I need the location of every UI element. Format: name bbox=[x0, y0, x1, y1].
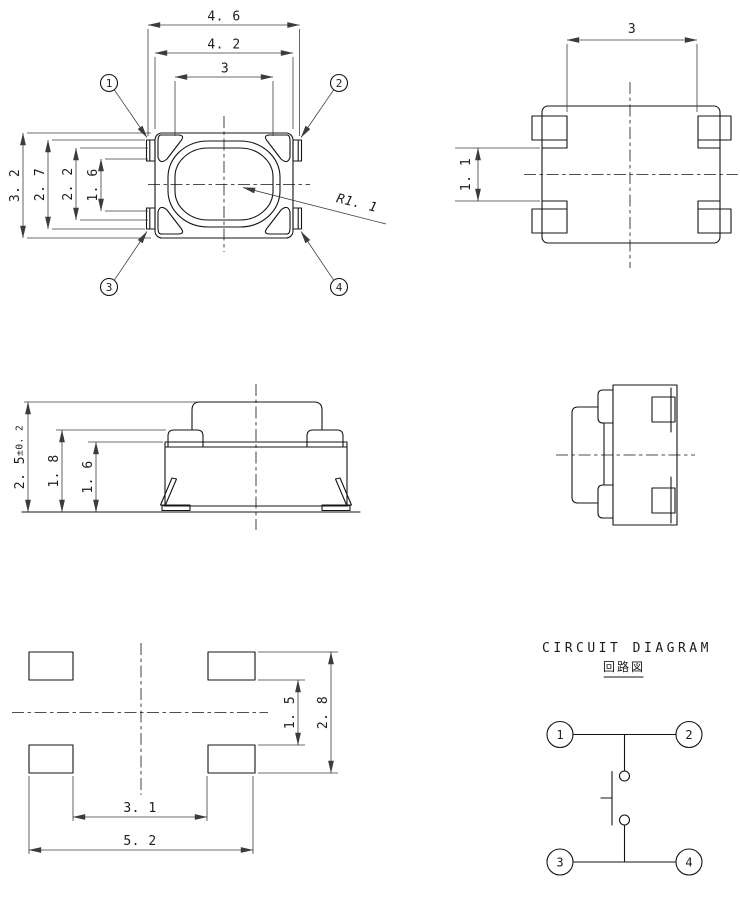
leg-left bbox=[161, 478, 177, 506]
pin1-number: 1 bbox=[106, 77, 113, 90]
circuit-diagram: CIRCUIT DIAGRAM 回路図 1 2 3 4 bbox=[520, 630, 740, 890]
pad-top-left bbox=[29, 652, 73, 680]
front-view-outline bbox=[22, 384, 360, 530]
dim-label-terminal-gap: 1. 1 bbox=[459, 158, 474, 191]
pad-top-right bbox=[208, 652, 255, 680]
button-stem bbox=[192, 402, 322, 442]
land-pattern-drawing: 1. 5 2. 8 3. 1 5. 2 bbox=[0, 625, 350, 875]
cover-tab-right bbox=[307, 430, 343, 447]
contact-upper bbox=[620, 771, 630, 781]
dim-label-cover-height: 1. 8 bbox=[47, 454, 62, 487]
top-view-drawing: 4. 6 4. 2 3 3. 2 2. 7 2. 2 1. 6 bbox=[0, 0, 420, 320]
circuit-pin3-number: 3 bbox=[556, 856, 563, 870]
dim-label-pad-span-h: 5. 2 bbox=[123, 834, 156, 849]
bottom-view-drawing: 3 1. 1 bbox=[440, 0, 740, 290]
body-outline-side bbox=[613, 385, 677, 525]
bottom-view-outline bbox=[524, 82, 738, 268]
side-view-drawing bbox=[550, 380, 700, 530]
circuit-pin2-number: 2 bbox=[685, 728, 692, 742]
switch-body-top-outline bbox=[147, 116, 311, 252]
dim-label-width: 3 bbox=[628, 22, 636, 37]
dim-label-body-width: 4. 2 bbox=[207, 38, 240, 53]
dim-label-center-height: 1. 6 bbox=[86, 168, 101, 201]
dim-label-body-height: 3. 2 bbox=[8, 169, 23, 202]
side-view-outline bbox=[556, 385, 695, 525]
front-view-drawing: 2. 5±0. 2 1. 8 1. 6 bbox=[0, 380, 370, 535]
circuit-pin1-number: 1 bbox=[556, 728, 563, 742]
dim-label-pad-gap-v: 1. 5 bbox=[283, 696, 298, 729]
pin3-number: 3 bbox=[106, 281, 113, 294]
pin4-number: 4 bbox=[336, 281, 343, 294]
dim-label-terminal-span: 2. 7 bbox=[33, 168, 48, 201]
pad-bottom-right bbox=[208, 745, 255, 773]
dim-label-button-width: 3 bbox=[221, 62, 229, 77]
dim-label-inner-height: 2. 2 bbox=[61, 167, 76, 200]
circuit-wires bbox=[573, 735, 676, 863]
dim-label-pad-span-v: 2. 8 bbox=[316, 696, 331, 729]
pad-bottom-left bbox=[29, 745, 73, 773]
technical-drawing-sheet: 4. 6 4. 2 3 3. 2 2. 7 2. 2 1. 6 bbox=[0, 0, 740, 897]
contact-lower bbox=[620, 815, 630, 825]
dim-label-total-height: 2. 5±0. 2 bbox=[13, 425, 28, 489]
pin2-number: 2 bbox=[336, 77, 343, 90]
cover-tab-left bbox=[168, 430, 203, 447]
circuit-title-japanese: 回路図 bbox=[603, 659, 645, 674]
dim-label-outer-width: 4. 6 bbox=[207, 10, 240, 25]
land-pattern-dimensions: 1. 5 2. 8 3. 1 5. 2 bbox=[29, 652, 338, 854]
top-view-dimensions: 4. 6 4. 2 3 3. 2 2. 7 2. 2 1. 6 bbox=[8, 10, 386, 239]
circuit-pin4-number: 4 bbox=[685, 856, 692, 870]
dim-label-body-height: 1. 6 bbox=[81, 460, 96, 493]
leg-right bbox=[336, 478, 352, 506]
circuit-title: CIRCUIT DIAGRAM bbox=[542, 641, 712, 656]
front-view-dimensions: 2. 5±0. 2 1. 8 1. 6 bbox=[13, 402, 198, 512]
dim-label-pad-gap-h: 3. 1 bbox=[123, 801, 156, 816]
